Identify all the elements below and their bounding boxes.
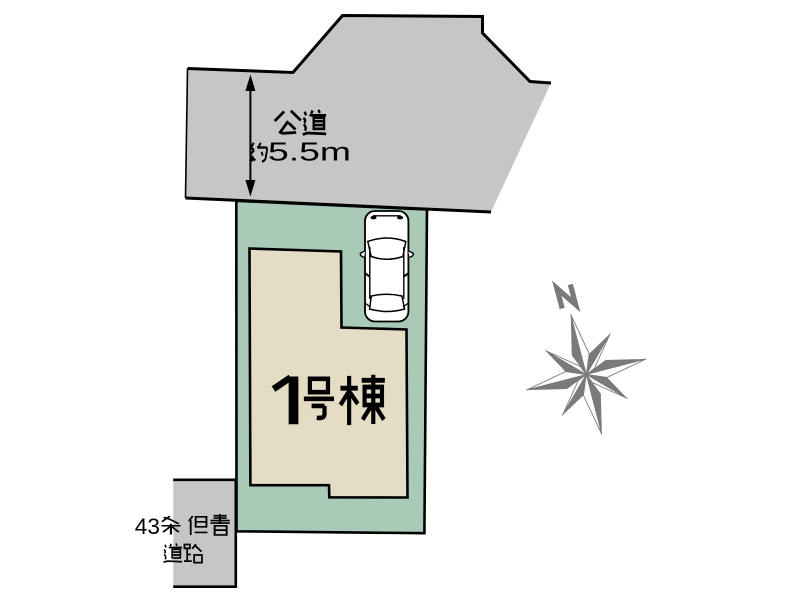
svg-text:5.5m: 5.5m bbox=[268, 137, 351, 167]
svg-text:43: 43 bbox=[135, 514, 160, 539]
